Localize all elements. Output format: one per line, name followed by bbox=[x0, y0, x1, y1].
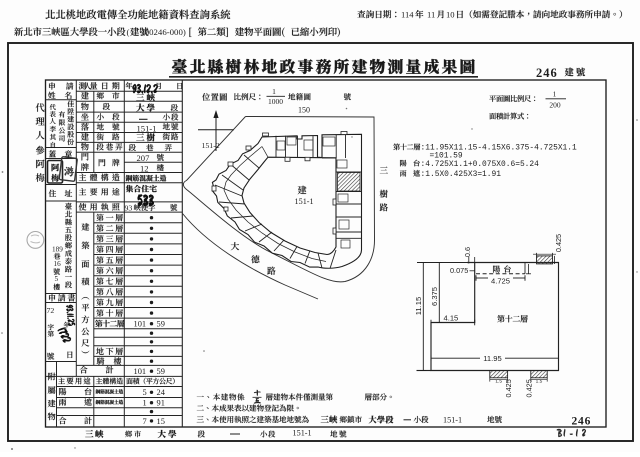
svg-text:4.15: 4.15 bbox=[444, 313, 459, 322]
svg-text:0.425: 0.425 bbox=[525, 379, 534, 397]
svg-text:101: 101 bbox=[134, 319, 147, 328]
svg-text:0.6: 0.6 bbox=[463, 247, 472, 257]
svg-text:11.15: 11.15 bbox=[414, 297, 423, 315]
svg-text:0.075: 0.075 bbox=[450, 266, 468, 275]
svg-text:1000: 1000 bbox=[268, 97, 283, 106]
svg-text:200: 200 bbox=[549, 101, 561, 110]
svg-text:11: 11 bbox=[427, 10, 435, 20]
svg-text:16: 16 bbox=[54, 260, 62, 268]
svg-text:246: 246 bbox=[572, 415, 592, 427]
svg-text:12: 12 bbox=[140, 163, 149, 173]
svg-text:1: 1 bbox=[143, 399, 147, 408]
svg-text:5: 5 bbox=[55, 275, 59, 283]
svg-text:101: 101 bbox=[134, 367, 147, 376]
svg-text:151-1: 151-1 bbox=[295, 197, 314, 206]
svg-text:10: 10 bbox=[446, 10, 455, 20]
svg-text:1: 1 bbox=[272, 87, 276, 96]
svg-text:11.95: 11.95 bbox=[483, 354, 501, 363]
svg-text:4.725: 4.725 bbox=[491, 276, 510, 285]
svg-text:246: 246 bbox=[536, 66, 558, 80]
svg-text:59: 59 bbox=[157, 367, 165, 376]
svg-text:1.5: 1.5 bbox=[495, 378, 502, 384]
svg-text:6.375: 6.375 bbox=[430, 287, 439, 306]
svg-text:150: 150 bbox=[298, 106, 310, 115]
svg-text::1.5X0.425X3=1.91: :1.5X0.425X3=1.91 bbox=[421, 170, 502, 179]
svg-text:1: 1 bbox=[553, 90, 557, 99]
svg-text:151-1: 151-1 bbox=[443, 415, 462, 424]
svg-text:114: 114 bbox=[401, 10, 414, 20]
svg-text:0.425: 0.425 bbox=[504, 379, 513, 397]
svg-text:189: 189 bbox=[52, 246, 63, 254]
svg-text:151-2: 151-2 bbox=[202, 141, 220, 150]
svg-text:(: ( bbox=[127, 27, 130, 37]
svg-text:7: 7 bbox=[143, 417, 147, 426]
svg-text:91: 91 bbox=[157, 399, 165, 408]
svg-text:24: 24 bbox=[157, 388, 166, 397]
svg-text:0.425: 0.425 bbox=[554, 234, 563, 252]
svg-text:5: 5 bbox=[143, 388, 147, 397]
svg-text:151-1: 151-1 bbox=[293, 428, 312, 437]
svg-text:15: 15 bbox=[157, 417, 165, 426]
svg-text:93: 93 bbox=[125, 203, 133, 212]
svg-text:1.5: 1.5 bbox=[536, 378, 543, 384]
svg-text::00246-000): :00246-000) bbox=[142, 27, 186, 37]
svg-text::4.725X1.1+0.075X0.6=5.24: :4.725X1.1+0.075X0.6=5.24 bbox=[421, 160, 540, 169]
svg-text:151-1: 151-1 bbox=[137, 123, 157, 133]
svg-text:207: 207 bbox=[137, 153, 151, 163]
svg-text:72: 72 bbox=[47, 306, 55, 315]
svg-text:59: 59 bbox=[157, 319, 165, 328]
